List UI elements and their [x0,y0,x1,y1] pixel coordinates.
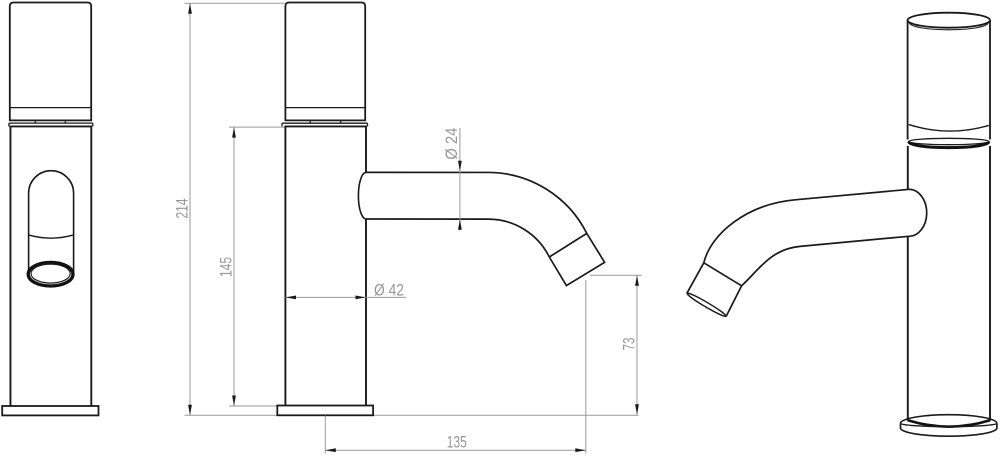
svg-text:145: 145 [217,257,236,277]
svg-text:Ø 42: Ø 42 [374,280,404,299]
svg-text:73: 73 [620,338,639,351]
svg-text:135: 135 [447,433,467,452]
svg-text:214: 214 [173,199,192,219]
svg-text:Ø 24: Ø 24 [442,128,461,160]
